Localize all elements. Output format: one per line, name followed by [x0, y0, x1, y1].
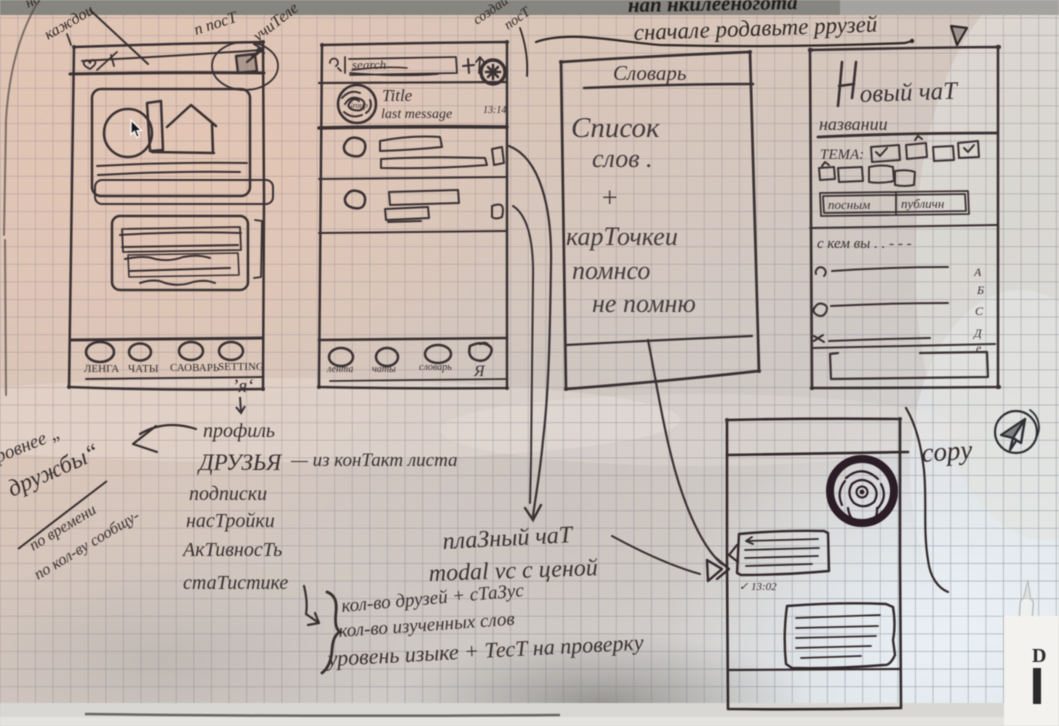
svg-text:D: D: [1032, 645, 1046, 667]
svg-text:ЧАТЫ: ЧАТЫ: [128, 363, 159, 375]
svg-text:last message: last message: [381, 107, 452, 122]
svg-text:словарь: словарь: [419, 362, 452, 373]
svg-text:ДРУЗЬЯ: ДРУЗЬЯ: [197, 450, 283, 475]
svg-text:названии: названии: [819, 114, 888, 134]
svg-text:Я: Я: [473, 363, 486, 380]
svg-text:copy: copy: [920, 435, 973, 468]
svg-text:Список: Список: [571, 112, 660, 144]
svg-text:ЛЕНГА: ЛЕНГА: [84, 363, 119, 375]
svg-text:насТройки: насТройки: [186, 510, 275, 532]
svg-text:не помню: не помню: [592, 289, 696, 318]
svg-text:’я‘: ’я‘: [232, 376, 254, 397]
svg-text:подписки: подписки: [189, 483, 267, 505]
svg-text:Group: Group: [347, 101, 368, 110]
svg-text:ТЕМА:: ТЕМА:: [820, 147, 864, 163]
svg-text:АкТивносТь: АкТивносТь: [181, 539, 282, 561]
svg-text:Title: Title: [382, 86, 413, 105]
svg-text:С: С: [975, 304, 984, 318]
svg-text:Б: Б: [976, 283, 984, 297]
svg-text:стаТистике: стаТистике: [183, 572, 288, 594]
svg-text:помнсо: помнсо: [572, 256, 650, 285]
svg-text:лента: лента: [326, 364, 353, 375]
svg-text:А: А: [973, 265, 982, 279]
svg-text:+: +: [600, 183, 619, 214]
svg-text:публичн: публичн: [901, 196, 944, 211]
svg-text:посным: посным: [828, 197, 870, 212]
svg-text:13:14: 13:14: [483, 105, 506, 116]
svg-text:карТочкеи: карТочкеи: [566, 222, 678, 251]
svg-text:САОВАРЬ: САОВАРЬ: [170, 362, 219, 374]
svg-text:чаты: чаты: [372, 364, 396, 375]
svg-text:профиль: профиль: [203, 420, 275, 442]
svg-text:слов .: слов .: [592, 144, 652, 173]
svg-text:Словарь: Словарь: [613, 61, 686, 85]
svg-text:— из конТакт листа: — из конТакт листа: [290, 450, 458, 471]
svg-text:с кем вы . . - - -: с кем вы . . - - -: [817, 236, 912, 252]
svg-text:Д: Д: [973, 326, 983, 340]
svg-text:search: search: [352, 57, 386, 72]
svg-text:SETTING: SETTING: [218, 361, 264, 373]
svg-text:е: е: [976, 341, 982, 355]
svg-text:✓ 13:02: ✓ 13:02: [739, 581, 777, 593]
svg-text:овый чаТ: овый чаТ: [859, 78, 959, 108]
